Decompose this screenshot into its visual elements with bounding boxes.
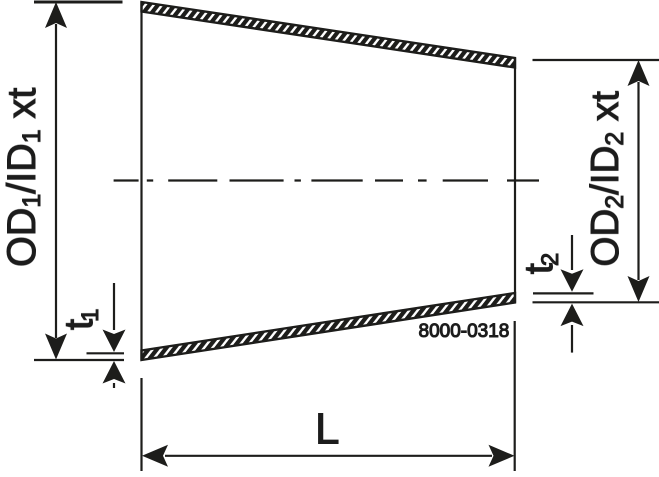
svg-text:t1: t1	[57, 309, 104, 330]
svg-text:L: L	[315, 405, 339, 454]
svg-text:OD1/ID1 xt: OD1/ID1 xt	[0, 88, 46, 267]
svg-text:t2: t2	[517, 253, 564, 274]
svg-text:8000-0318: 8000-0318	[419, 321, 510, 342]
svg-text:OD2/ID2 xt: OD2/ID2 xt	[584, 91, 629, 267]
